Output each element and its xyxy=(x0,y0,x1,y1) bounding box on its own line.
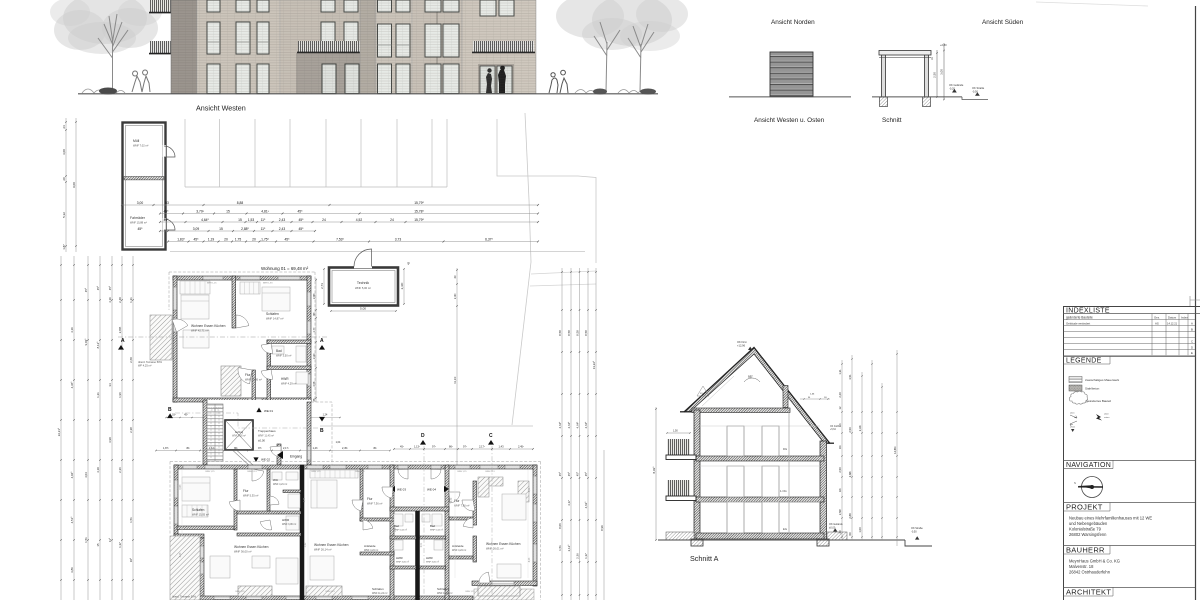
svg-text:2,56: 2,56 xyxy=(313,381,316,386)
svg-text:2,12⁵: 2,12⁵ xyxy=(567,544,571,552)
svg-text:2,20: 2,20 xyxy=(838,392,842,398)
svg-text:PROJEKT: PROJEKT xyxy=(1066,502,1103,511)
svg-text:WE 02: WE 02 xyxy=(261,458,270,462)
svg-text:BRH 1,25: BRH 1,25 xyxy=(465,591,475,593)
svg-text:WNF 3,06 m²: WNF 3,06 m² xyxy=(426,560,439,563)
svg-text:Ansicht Norden: Ansicht Norden xyxy=(771,19,815,26)
svg-text:20: 20 xyxy=(252,237,256,241)
svg-text:15: 15 xyxy=(219,227,223,231)
svg-text:BRH 1,25: BRH 1,25 xyxy=(457,471,467,473)
svg-text:Treppenhaus: Treppenhaus xyxy=(258,429,276,433)
svg-text:34: 34 xyxy=(108,383,112,387)
svg-text:Gebäude verändert: Gebäude verändert xyxy=(1066,321,1090,325)
svg-text:WNF 3,06 m²: WNF 3,06 m² xyxy=(396,560,409,563)
svg-text:BAUHERR: BAUHERR xyxy=(1066,545,1105,554)
svg-text:8,88: 8,88 xyxy=(237,201,244,205)
svg-text:53: 53 xyxy=(165,201,169,205)
svg-text:45⁵: 45⁵ xyxy=(298,227,304,231)
svg-text:2,38: 2,38 xyxy=(129,427,133,433)
svg-text:4,36⁵: 4,36⁵ xyxy=(70,381,74,389)
svg-text:Bad: Bad xyxy=(394,524,399,528)
svg-text:45⁵: 45⁵ xyxy=(284,237,290,241)
svg-text:WNF 7,02 m²: WNF 7,02 m² xyxy=(133,143,149,147)
svg-text:-0,50: -0,50 xyxy=(911,530,917,533)
svg-text:2,43: 2,43 xyxy=(279,218,286,222)
svg-text:Ansicht Süden: Ansicht Süden xyxy=(982,19,1024,26)
svg-text:WC: WC xyxy=(273,478,279,482)
svg-text:Ankleide: Ankleide xyxy=(452,544,464,548)
svg-text:Technik: Technik xyxy=(357,281,369,285)
svg-text:3,90: 3,90 xyxy=(108,437,112,443)
svg-text:WNF 3,50 m²: WNF 3,50 m² xyxy=(276,353,292,357)
svg-text:2,88⁵: 2,88⁵ xyxy=(848,471,852,477)
svg-text:10⁵: 10⁵ xyxy=(824,397,827,399)
svg-text:Wohnen Essen Küchen: Wohnen Essen Küchen xyxy=(486,542,521,546)
svg-text:WNF 14,87 m²: WNF 14,87 m² xyxy=(266,317,284,321)
svg-text:BRH 1,93: BRH 1,93 xyxy=(263,283,273,285)
svg-text:Flur: Flur xyxy=(243,489,249,493)
svg-text:1,53: 1,53 xyxy=(248,218,255,222)
svg-text:WNF 4,24 m²: WNF 4,24 m² xyxy=(452,549,466,552)
svg-text:Wohnen Essen Küchen: Wohnen Essen Küchen xyxy=(191,324,226,328)
svg-text:OK Straße: OK Straße xyxy=(972,86,985,90)
svg-text:12: 12 xyxy=(838,406,842,409)
svg-text:6,37⁵: 6,37⁵ xyxy=(485,237,493,241)
svg-text:1,13⁵: 1,13⁵ xyxy=(414,445,420,449)
svg-text:WF 4,25 m²: WF 4,25 m² xyxy=(138,364,152,368)
svg-text:Index: Index xyxy=(1181,315,1188,319)
svg-text:Eingang: Eingang xyxy=(290,455,302,459)
svg-text:8,12⁵: 8,12⁵ xyxy=(96,341,100,349)
svg-text:WNF 42,71 m²: WNF 42,71 m² xyxy=(191,329,209,333)
svg-text:7,53⁵: 7,53⁵ xyxy=(336,237,344,241)
svg-text:HWR: HWR xyxy=(426,556,433,560)
svg-text:Schlafen: Schlafen xyxy=(372,587,384,591)
svg-text:1,37: 1,37 xyxy=(118,542,122,548)
svg-text:LEGENDE: LEGENDE xyxy=(1066,357,1102,364)
svg-text:geändertes Bauteil: geändertes Bauteil xyxy=(1086,399,1111,403)
svg-text:WE 01: WE 01 xyxy=(264,409,273,413)
svg-text:Neubau eines Mehrfamilienhause: Neubau eines Mehrfamilienhauses mit 12 W… xyxy=(1069,516,1152,521)
svg-text:Wohnen Essen Küchen: Wohnen Essen Küchen xyxy=(234,545,269,549)
svg-text:A: A xyxy=(1191,321,1193,325)
svg-text:WNF 36,00 m²: WNF 36,00 m² xyxy=(234,550,252,554)
svg-text:N: N xyxy=(1074,481,1076,485)
svg-text:2,17⁵: 2,17⁵ xyxy=(479,445,485,449)
svg-text:1,51: 1,51 xyxy=(84,537,88,543)
svg-text:BRH 1,25: BRH 1,25 xyxy=(235,591,245,593)
svg-text:97⁵: 97⁵ xyxy=(432,445,436,449)
svg-text:26802 Warsingsfenn: 26802 Warsingsfenn xyxy=(1069,532,1107,537)
svg-text:15: 15 xyxy=(226,209,230,213)
svg-text:11,14⁵: 11,14⁵ xyxy=(453,376,457,383)
svg-text:24: 24 xyxy=(390,218,394,222)
svg-text:13,22⁵: 13,22⁵ xyxy=(592,360,596,369)
svg-text:WNF 15,88 m²: WNF 15,88 m² xyxy=(130,220,147,224)
svg-text:4,64⁵: 4,64⁵ xyxy=(201,218,209,222)
svg-text:D: D xyxy=(421,433,425,439)
svg-text:C: C xyxy=(489,433,493,439)
svg-text:2,30⁵: 2,30⁵ xyxy=(453,293,457,299)
svg-text:BRH 2,13: BRH 2,13 xyxy=(247,471,257,473)
svg-text:1,75: 1,75 xyxy=(235,237,242,241)
svg-text:4,81¹: 4,81¹ xyxy=(261,209,269,213)
svg-text:4,52: 4,52 xyxy=(356,218,363,222)
svg-text:1.OG: 1.OG xyxy=(780,489,787,493)
svg-text:2,73: 2,73 xyxy=(320,283,324,289)
svg-text:2,01: 2,01 xyxy=(421,542,423,547)
svg-text:97⁵: 97⁵ xyxy=(463,445,467,449)
svg-text:B: B xyxy=(168,407,172,413)
svg-text:WNF 7,36 m²: WNF 7,36 m² xyxy=(454,503,470,507)
svg-text:32⁵: 32⁵ xyxy=(838,423,842,427)
svg-text:überd. Terrasse 50%: überd. Terrasse 50% xyxy=(172,595,197,599)
svg-text:WNF 3,06 m²: WNF 3,06 m² xyxy=(282,523,296,526)
svg-text:+12,96: +12,96 xyxy=(737,344,746,348)
svg-text:D: D xyxy=(1191,345,1193,349)
svg-text:11⁵: 11⁵ xyxy=(261,227,266,231)
svg-text:1,12⁵: 1,12⁵ xyxy=(209,446,215,450)
svg-text:4,51⁵: 4,51⁵ xyxy=(70,516,74,524)
svg-text:1,00: 1,00 xyxy=(858,527,862,533)
svg-text:WNF 4,24 m²: WNF 4,24 m² xyxy=(364,549,378,552)
svg-text:9,00: 9,00 xyxy=(72,182,76,188)
svg-text:15,79⁵: 15,79⁵ xyxy=(414,218,424,222)
svg-text:45⁵: 45⁵ xyxy=(193,237,199,241)
svg-text:Gez.: Gez. xyxy=(1154,315,1160,319)
svg-text:11⁵: 11⁵ xyxy=(261,218,266,222)
svg-text:WNF 3,95 m²: WNF 3,95 m² xyxy=(232,435,246,438)
svg-text:EG: EG xyxy=(783,527,787,531)
svg-text:WNF 4,29 m²: WNF 4,29 m² xyxy=(281,381,297,385)
svg-text:86⁵: 86⁵ xyxy=(234,446,238,450)
svg-text:Bad: Bad xyxy=(276,349,282,353)
svg-text:86⁵: 86⁵ xyxy=(449,445,453,449)
svg-text:5,32: 5,32 xyxy=(62,212,66,218)
svg-text:1,19: 1,19 xyxy=(208,237,215,241)
svg-text:1,43: 1,43 xyxy=(498,445,504,449)
svg-text:4,04⁵: 4,04⁵ xyxy=(70,471,74,479)
svg-text:20: 20 xyxy=(62,177,66,181)
svg-text:97⁵: 97⁵ xyxy=(258,446,262,450)
svg-text:1,77: 1,77 xyxy=(313,327,316,332)
svg-text:15: 15 xyxy=(238,218,242,222)
svg-text:1,31: 1,31 xyxy=(838,369,842,375)
svg-text:3,34⁵: 3,34⁵ xyxy=(858,425,862,431)
svg-text:WNF 11,24 m²: WNF 11,24 m² xyxy=(437,592,453,595)
svg-text:3,70²: 3,70² xyxy=(196,209,204,213)
svg-text:26842 Ostrhauderfehn: 26842 Ostrhauderfehn xyxy=(1069,570,1111,575)
svg-text:Malvenstr. 18: Malvenstr. 18 xyxy=(1069,564,1094,569)
svg-text:24: 24 xyxy=(62,125,66,129)
svg-text:8,99: 8,99 xyxy=(600,525,604,531)
svg-text:2,60: 2,60 xyxy=(129,357,133,363)
svg-text:4,23: 4,23 xyxy=(180,552,182,557)
svg-text:Schlafen: Schlafen xyxy=(266,312,279,316)
svg-text:2,50: 2,50 xyxy=(933,72,937,78)
svg-text:Wohnung 01 = 69,48 m²: Wohnung 01 = 69,48 m² xyxy=(261,266,309,271)
svg-text:15,78⁵: 15,78⁵ xyxy=(414,209,424,213)
svg-text:C: C xyxy=(1191,339,1193,343)
svg-text:WNF 10,06 m²: WNF 10,06 m² xyxy=(245,377,262,381)
svg-text:Schlafen: Schlafen xyxy=(437,587,449,591)
svg-text:2,50²: 2,50² xyxy=(838,509,842,515)
svg-text:2,88⁵: 2,88⁵ xyxy=(241,227,249,231)
svg-text:BRH 1,25: BRH 1,25 xyxy=(355,471,365,473)
svg-text:4,17: 4,17 xyxy=(567,500,571,506)
svg-text:WNF 5,00 m²: WNF 5,00 m² xyxy=(355,286,371,290)
svg-text:3,09: 3,09 xyxy=(193,227,200,231)
svg-text:18⁵: 18⁵ xyxy=(838,488,842,492)
svg-text:45°: 45° xyxy=(700,393,703,395)
svg-text:20: 20 xyxy=(224,237,228,241)
svg-text:2,30: 2,30 xyxy=(451,497,453,502)
svg-text:WE 03: WE 03 xyxy=(397,488,406,492)
svg-text:2,45⁵: 2,45⁵ xyxy=(518,445,524,449)
svg-text:15,79⁵: 15,79⁵ xyxy=(414,201,424,205)
svg-text:2,88: 2,88 xyxy=(848,513,852,519)
svg-text:Schnitt: Schnitt xyxy=(882,117,902,124)
svg-text:B: B xyxy=(320,428,324,434)
svg-text:2,36: 2,36 xyxy=(575,553,579,559)
svg-text:1,04: 1,04 xyxy=(336,441,341,444)
svg-text:Fahrräder: Fahrräder xyxy=(130,216,146,220)
svg-text:60: 60 xyxy=(848,532,852,535)
svg-text:45⁵: 45⁵ xyxy=(373,446,377,450)
svg-text:Flur: Flur xyxy=(245,373,251,377)
svg-text:MeynHaus GmbH & Co. KG: MeynHaus GmbH & Co. KG xyxy=(1069,559,1120,564)
svg-text:45⁵: 45⁵ xyxy=(163,218,169,222)
svg-text:WNF 26,01 m²: WNF 26,01 m² xyxy=(486,547,504,551)
svg-text:8,58: 8,58 xyxy=(558,330,562,336)
svg-text:43: 43 xyxy=(407,261,411,265)
svg-text:NAVIGATION: NAVIGATION xyxy=(1066,462,1111,469)
svg-text:überd. Terrasse 50%: überd. Terrasse 50% xyxy=(138,360,163,364)
svg-text:4,64⁴: 4,64⁴ xyxy=(575,421,579,429)
svg-text:2,30²: 2,30² xyxy=(400,283,404,290)
svg-text:und Nebengebäuden: und Nebengebäuden xyxy=(1069,521,1108,526)
svg-text:3,00: 3,00 xyxy=(940,69,944,75)
svg-text:22,21⁵: 22,21⁵ xyxy=(57,427,61,436)
svg-text:9,03⁵: 9,03⁵ xyxy=(84,338,88,346)
svg-text:HWR: HWR xyxy=(282,518,290,522)
svg-text:WNF 26,14 m²: WNF 26,14 m² xyxy=(314,548,332,552)
svg-text:15: 15 xyxy=(96,543,100,547)
svg-text:BRH 1,25: BRH 1,25 xyxy=(207,283,217,285)
svg-text:3,00: 3,00 xyxy=(62,149,66,155)
svg-text:3,51: 3,51 xyxy=(848,374,852,380)
svg-text:5,00: 5,00 xyxy=(360,307,366,311)
svg-text:WNF 7,36 m²: WNF 7,36 m² xyxy=(367,501,383,505)
svg-text:A: A xyxy=(121,338,125,344)
svg-text:45⁵: 45⁵ xyxy=(163,209,169,213)
svg-text:8,58: 8,58 xyxy=(575,330,579,336)
svg-text:45⁵: 45⁵ xyxy=(137,227,143,231)
svg-text:20: 20 xyxy=(838,530,842,533)
svg-text:WNF 15,05 m²: WNF 15,05 m² xyxy=(192,512,209,516)
svg-text:oben: oben xyxy=(1104,414,1110,416)
svg-text:2,43: 2,43 xyxy=(279,227,286,231)
svg-text:4,01: 4,01 xyxy=(529,487,531,492)
svg-text:WNF 5,35 m²: WNF 5,35 m² xyxy=(243,493,259,497)
svg-text:Ankleide: Ankleide xyxy=(364,544,376,548)
svg-text:3,40: 3,40 xyxy=(305,542,307,547)
svg-text:Aufzug: Aufzug xyxy=(235,430,244,434)
svg-text:Schlafen: Schlafen xyxy=(192,508,205,512)
svg-text:ARCHITEKT: ARCHITEKT xyxy=(1066,587,1111,596)
svg-text:2,50: 2,50 xyxy=(848,427,852,433)
svg-text:3,89: 3,89 xyxy=(70,567,74,573)
svg-text:OK First: OK First xyxy=(737,340,747,344)
svg-text:WE 04: WE 04 xyxy=(427,488,436,492)
svg-text:1,87: 1,87 xyxy=(62,244,66,250)
svg-text:BRH 2,13: BRH 2,13 xyxy=(325,591,335,593)
svg-text:4,19: 4,19 xyxy=(70,327,74,333)
svg-text:Ansicht Westen u. Osten: Ansicht Westen u. Osten xyxy=(754,117,825,124)
svg-text:2,45⁵: 2,45⁵ xyxy=(342,446,348,450)
svg-text:1,96: 1,96 xyxy=(118,392,122,398)
svg-text:Datum: Datum xyxy=(1168,315,1177,319)
svg-text:4,10: 4,10 xyxy=(96,467,100,473)
svg-text:WNF 5,34 m²: WNF 5,34 m² xyxy=(430,528,443,531)
svg-text:B: B xyxy=(1191,327,1193,331)
svg-text:2,46: 2,46 xyxy=(304,497,306,502)
svg-text:E: E xyxy=(1191,351,1193,355)
svg-text:1,43: 1,43 xyxy=(313,447,318,450)
svg-text:3,73: 3,73 xyxy=(395,237,402,241)
svg-text:4,64⁴: 4,64⁴ xyxy=(567,421,571,429)
svg-text:4,04: 4,04 xyxy=(84,472,88,478)
svg-text:1,75⁵: 1,75⁵ xyxy=(261,237,269,241)
svg-text:1,21: 1,21 xyxy=(96,392,100,398)
svg-text:HWR: HWR xyxy=(281,377,289,381)
svg-text:12,66⁵: 12,66⁵ xyxy=(893,446,897,454)
svg-text:unten: unten xyxy=(1104,416,1110,419)
svg-text:HWR: HWR xyxy=(396,556,403,560)
svg-text:1,37: 1,37 xyxy=(584,553,588,559)
svg-text:WNF 11,45 m²: WNF 11,45 m² xyxy=(258,434,274,437)
svg-text:45⁵: 45⁵ xyxy=(400,445,404,449)
svg-text:8,58: 8,58 xyxy=(584,330,588,336)
svg-text:Müll: Müll xyxy=(133,139,139,143)
svg-text:Flur: Flur xyxy=(367,497,373,501)
svg-text:16⁵: 16⁵ xyxy=(838,445,842,449)
svg-text:4,19: 4,19 xyxy=(108,297,112,303)
svg-text:+2,80: +2,80 xyxy=(940,43,947,47)
svg-text:45⁵: 45⁵ xyxy=(186,446,190,450)
svg-text:BRH 1,25: BRH 1,25 xyxy=(205,471,215,473)
svg-text:A: A xyxy=(320,338,324,344)
svg-text:Schnitt A: Schnitt A xyxy=(690,554,719,563)
svg-text:24: 24 xyxy=(322,218,326,222)
svg-text:1,87⁵: 1,87⁵ xyxy=(163,446,169,450)
svg-text:3,00: 3,00 xyxy=(137,201,144,205)
svg-text:Stahlbeton: Stahlbeton xyxy=(1085,386,1100,390)
svg-text:+5,64: +5,64 xyxy=(830,429,837,431)
svg-text:2,40: 2,40 xyxy=(118,297,122,303)
svg-text:45⁵: 45⁵ xyxy=(297,209,303,213)
svg-text:zweischaliges Mauerwerk: zweischaliges Mauerwerk xyxy=(1085,378,1120,382)
svg-text:1,24: 1,24 xyxy=(323,414,328,417)
svg-text:Bad: Bad xyxy=(430,524,435,528)
svg-text:4,23: 4,23 xyxy=(529,557,531,562)
svg-text:8,93⁵: 8,93⁵ xyxy=(652,466,656,474)
svg-text:OK Gelände: OK Gelände xyxy=(949,83,964,87)
svg-text:2,36: 2,36 xyxy=(118,467,122,473)
svg-text:unten: unten xyxy=(1070,426,1076,429)
svg-text:4,62⁵: 4,62⁵ xyxy=(584,501,588,509)
svg-text:1,51: 1,51 xyxy=(129,517,133,523)
svg-text:4,64⁴: 4,64⁴ xyxy=(584,421,588,429)
svg-text:AS: AS xyxy=(1155,321,1159,325)
svg-text:8,06: 8,06 xyxy=(558,523,562,529)
svg-text:1,21: 1,21 xyxy=(129,297,133,303)
svg-text:8,58: 8,58 xyxy=(567,330,571,336)
svg-text:geänderte Bauteile: geänderte Bauteile xyxy=(1066,315,1093,319)
svg-text:1,51: 1,51 xyxy=(558,545,562,551)
svg-text:2,80¹: 2,80¹ xyxy=(118,327,122,334)
svg-text:±0,00: ±0,00 xyxy=(258,439,265,443)
svg-text:14.12.21: 14.12.21 xyxy=(1167,321,1178,325)
svg-text:BRH 2,13: BRH 2,13 xyxy=(485,471,495,473)
svg-text:2,50: 2,50 xyxy=(838,467,842,473)
svg-text:1,98: 1,98 xyxy=(395,527,397,532)
svg-text:2,17⁵: 2,17⁵ xyxy=(283,446,289,450)
svg-text:45⁵: 45⁵ xyxy=(298,218,304,222)
svg-text:1,83⁷: 1,83⁷ xyxy=(177,237,185,241)
svg-text:WNF 4,21 m²: WNF 4,21 m² xyxy=(273,483,287,486)
svg-text:Kolonialstraße 79: Kolonialstraße 79 xyxy=(1069,527,1102,532)
svg-text:Ansicht Westen: Ansicht Westen xyxy=(196,104,246,113)
svg-text:4,64⁴: 4,64⁴ xyxy=(558,421,562,429)
svg-text:1,50: 1,50 xyxy=(673,430,678,433)
svg-text:DG: DG xyxy=(783,447,787,451)
svg-text:WNF 11,24 m²: WNF 11,24 m² xyxy=(372,592,388,595)
svg-text:Wohnen Essen Küchen: Wohnen Essen Küchen xyxy=(314,543,349,547)
svg-text:H 8 STG/A/B/S/S: H 8 STG/A/B/S/S xyxy=(207,407,224,410)
svg-text:BRH 1,25: BRH 1,25 xyxy=(311,471,321,473)
